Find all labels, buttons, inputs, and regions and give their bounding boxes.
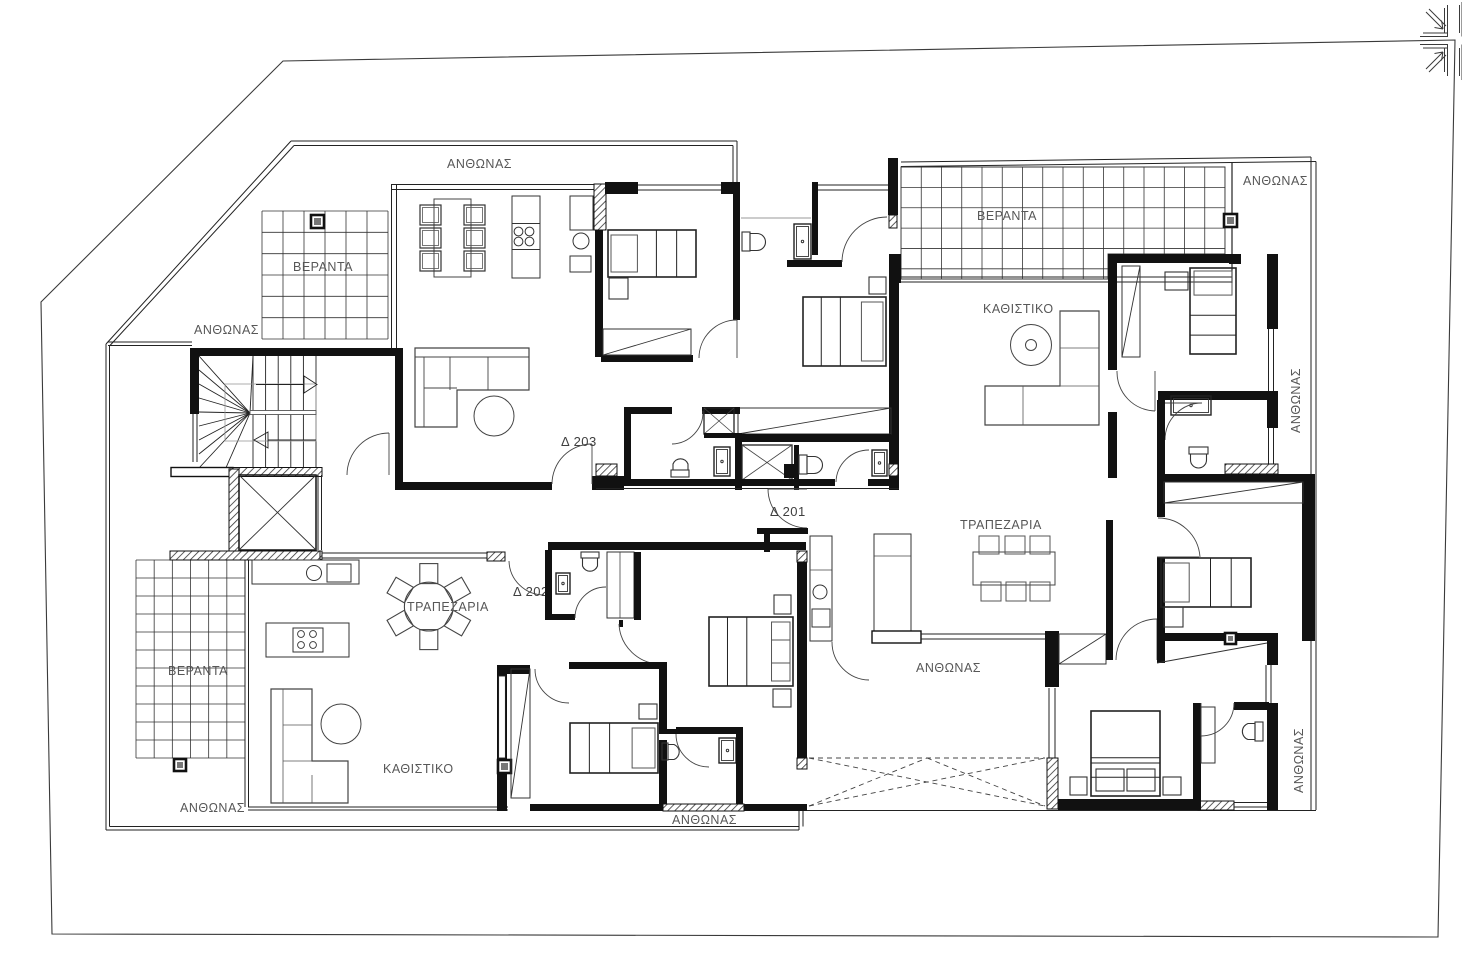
svg-text:Δ 201: Δ 201	[770, 504, 806, 519]
svg-text:ΚΑΘΙΣΤΙΚΟ: ΚΑΘΙΣΤΙΚΟ	[383, 762, 454, 776]
svg-text:ΑΝΘΩΝΑΣ: ΑΝΘΩΝΑΣ	[1243, 174, 1308, 188]
svg-text:ΒΕΡΑΝΤΑ: ΒΕΡΑΝΤΑ	[168, 664, 228, 678]
svg-text:ΑΝΘΩΝΑΣ: ΑΝΘΩΝΑΣ	[1292, 728, 1306, 793]
svg-text:ΒΕΡΑΝΤΑ: ΒΕΡΑΝΤΑ	[293, 260, 353, 274]
svg-text:Δ 203: Δ 203	[561, 434, 597, 449]
svg-text:ΚΑΘΙΣΤΙΚΟ: ΚΑΘΙΣΤΙΚΟ	[983, 302, 1054, 316]
svg-text:ΑΝΘΩΝΑΣ: ΑΝΘΩΝΑΣ	[194, 323, 259, 337]
svg-text:ΑΝΘΩΝΑΣ: ΑΝΘΩΝΑΣ	[447, 157, 512, 171]
svg-text:ΒΕΡΑΝΤΑ: ΒΕΡΑΝΤΑ	[977, 209, 1037, 223]
svg-text:ΑΝΘΩΝΑΣ: ΑΝΘΩΝΑΣ	[1289, 368, 1303, 433]
svg-text:Δ 202: Δ 202	[513, 584, 549, 599]
svg-text:ΤΡΑΠΕΖΑΡΙΑ: ΤΡΑΠΕΖΑΡΙΑ	[407, 600, 489, 614]
svg-text:ΤΡΑΠΕΖΑΡΙΑ: ΤΡΑΠΕΖΑΡΙΑ	[960, 518, 1042, 532]
svg-text:ΑΝΘΩΝΑΣ: ΑΝΘΩΝΑΣ	[916, 661, 981, 675]
svg-text:ΑΝΘΩΝΑΣ: ΑΝΘΩΝΑΣ	[180, 801, 245, 815]
svg-text:ΑΝΘΩΝΑΣ: ΑΝΘΩΝΑΣ	[672, 813, 737, 827]
